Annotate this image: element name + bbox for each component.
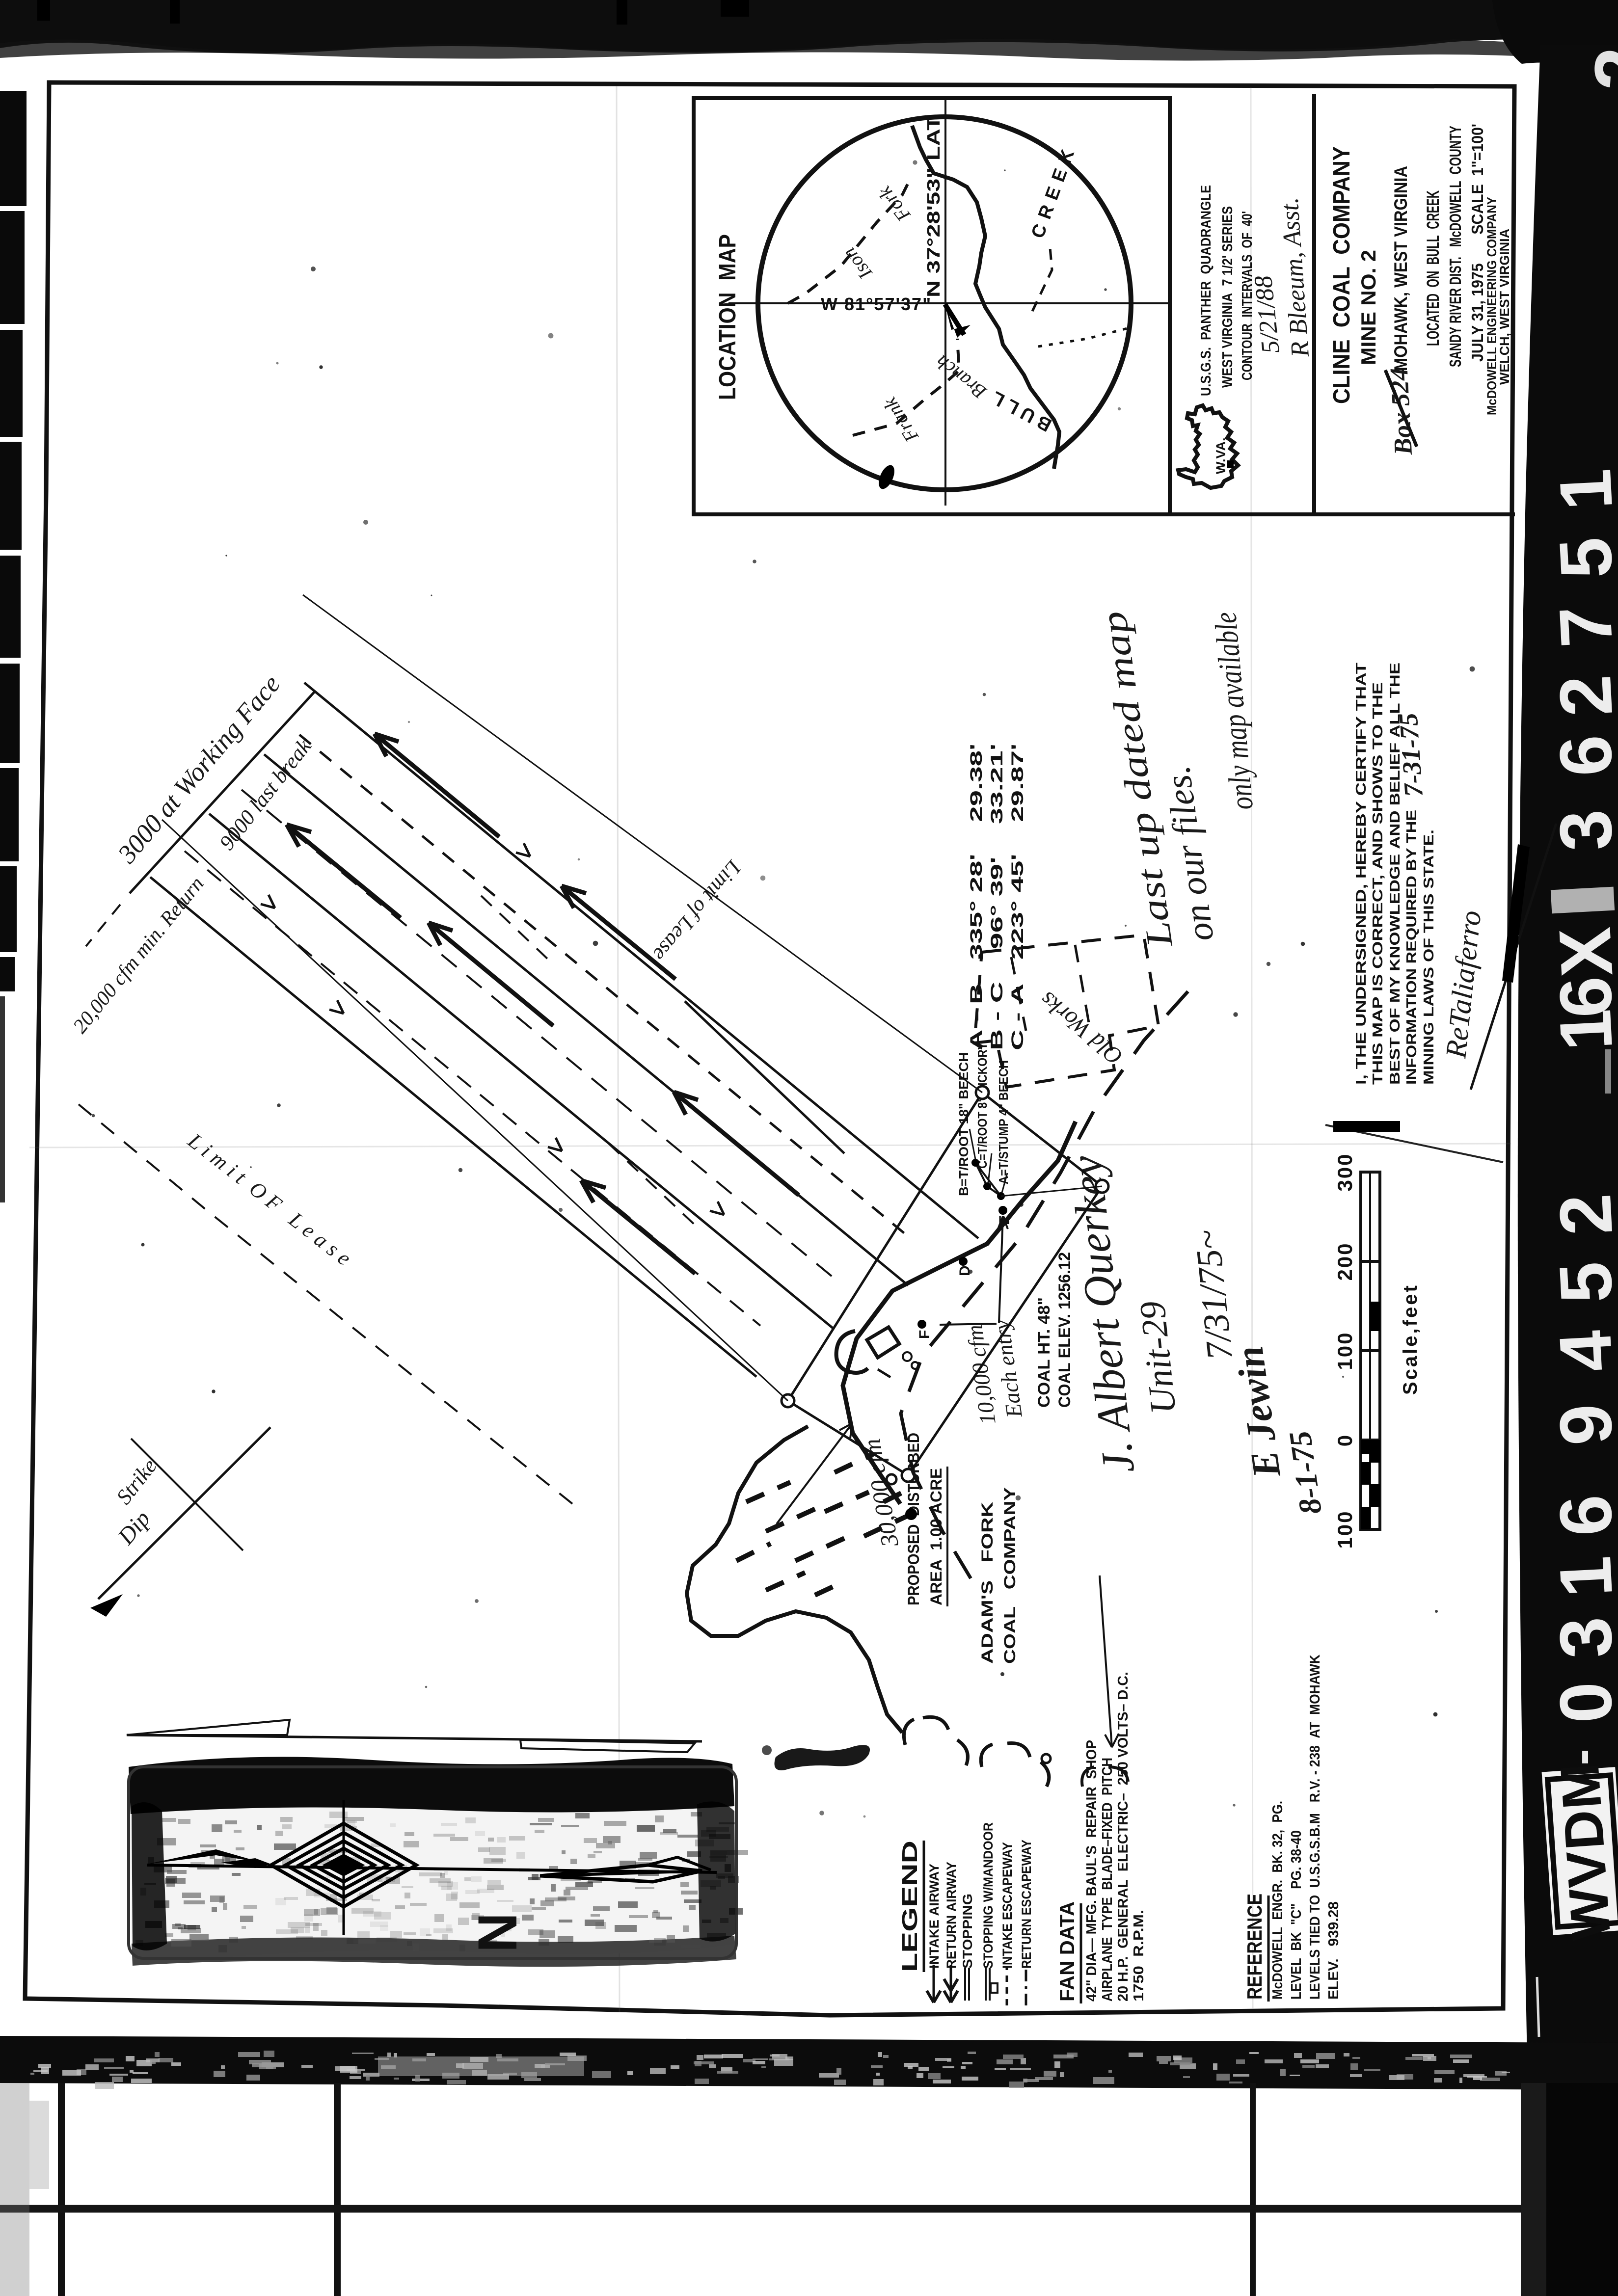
svg-text:200: 200 [1333,1242,1356,1281]
svg-text:1: 1 [1543,467,1618,512]
svg-text:A - B 335° 28' 29.38': A - B 335° 28' 29.38' [967,744,986,1050]
svg-text:INTAKE ESCAPEWAY: INTAKE ESCAPEWAY [1000,1842,1015,1969]
svg-text:CLINE COAL COMPANY: CLINE COAL COMPANY [1329,146,1355,404]
svg-text:C - A 223° 45' 29.87': C - A 223° 45' 29.87' [1008,744,1027,1050]
svg-text:RETURN ESCAPEWAY: RETURN ESCAPEWAY [1019,1840,1034,1969]
svg-text:FAN DATA: FAN DATA [1055,1901,1079,2002]
svg-text:A=T/STUMP 4" BEECH: A=T/STUMP 4" BEECH [996,1060,1011,1184]
svg-text:W 81°57'37": W 81°57'37" [821,294,932,314]
svg-text:THIS MAP IS CORRECT, AND SHOWS: THIS MAP IS CORRECT, AND SHOWS TO THE [1370,682,1386,1085]
svg-text:5: 5 [1543,1260,1618,1305]
svg-text:SANDY RIVER DIST. McDOWELL: SANDY RIVER DIST. McDOWELL COUNTY [1446,126,1464,367]
svg-text:JULY 31, 1975 SCALE 1"=: JULY 31, 1975 SCALE 1"=100' [1468,124,1486,362]
svg-text:COAL ELEV. 1256.12: COAL ELEV. 1256.12 [1055,1252,1074,1408]
svg-text:100: 100 [1333,1331,1356,1370]
svg-text:4: 4 [1543,1329,1618,1374]
svg-text:U.S.G.S. PANTHER QUADRANGLE: U.S.G.S. PANTHER QUADRANGLE [1198,185,1214,396]
svg-text:42" DIA— MFG. BAUL'S REPAIR: 42" DIA— MFG. BAUL'S REPAIR SHOP [1084,1740,1100,2002]
svg-text:2: 2 [1578,47,1618,91]
svg-text:D: D [957,1265,973,1276]
svg-text:STOPPING W/MANDOOR: STOPPING W/MANDOOR [981,1822,996,1969]
svg-text:300: 300 [1333,1152,1356,1191]
svg-text:7-31-75: 7-31-75 [1393,712,1429,798]
svg-text:F: F [917,1330,933,1339]
svg-text:REFERENCE: REFERENCE [1243,1894,1266,2000]
svg-text:6: 6 [1543,733,1618,778]
svg-text:100: 100 [1333,1510,1356,1548]
svg-text:ADAM'S FORK: ADAM'S FORK [978,1502,996,1664]
svg-text:WVDM: WVDM [1548,1761,1618,1942]
svg-text:LEVELS TIED TO U.S.G.S.B.M: LEVELS TIED TO U.S.G.S.B.M R.V. - 238 AT… [1307,1655,1323,2000]
svg-text:1: 1 [1543,1554,1618,1600]
svg-text:MINING LAWS OF THIS STATE.: MINING LAWS OF THIS STATE. [1421,829,1437,1085]
svg-text:1750 R.P.M.: 1750 R.P.M. [1131,1910,1147,2002]
svg-text:COAL HT. 48": COAL HT. 48" [1035,1297,1053,1408]
svg-text:AIRPLANE TYPE BLADE–FIXED P: AIRPLANE TYPE BLADE–FIXED PITCH [1100,1758,1115,2002]
svg-text:B - C 96° 39' 33.21': B - C 96° 39' 33.21' [988,744,1006,1050]
svg-text:COAL COMPANY: COAL COMPANY [1001,1487,1019,1664]
svg-text:X: X [1543,925,1618,979]
svg-text:LOCATED ON BULL CREEK: LOCATED ON BULL CREEK [1424,190,1443,346]
svg-text:INTAKE AIRWAY: INTAKE AIRWAY [927,1864,942,1969]
svg-text:2: 2 [1543,1192,1618,1237]
svg-text:20 H.P. GENERAL ELECTRIC– 2: 20 H.P. GENERAL ELECTRIC– 250 VOLTS– D.C… [1115,1672,1131,2002]
svg-text:3: 3 [1543,1615,1618,1660]
svg-text:MINE NO. 2: MINE NO. 2 [1357,250,1380,365]
svg-text:0: 0 [1543,1680,1618,1725]
svg-text:LOCATION MAP: LOCATION MAP [715,234,741,400]
svg-text:McDOWELL ENGR. BK. 32, PG.: McDOWELL ENGR. BK. 32, PG. [1270,1801,1286,2000]
svg-text:0: 0 [1333,1434,1356,1446]
svg-text:7: 7 [1543,604,1618,649]
svg-text:LEGEND: LEGEND [898,1841,922,1972]
svg-text:RETURN AIRWAY: RETURN AIRWAY [944,1862,959,1969]
svg-text:ELEV. 939.28: ELEV. 939.28 [1326,1901,1342,2000]
svg-text:Scale,feet: Scale,feet [1400,1283,1421,1395]
svg-text:AREA 1.00 ACRE: AREA 1.00 ACRE [927,1468,945,1605]
svg-text:STOPPING: STOPPING [960,1894,975,1969]
svg-text:WELCH, WEST VIRGINIA: WELCH, WEST VIRGINIA [1497,229,1512,385]
svg-text:W.VA.: W.VA. [1213,437,1228,474]
svg-text:6: 6 [1543,1493,1618,1538]
svg-text:C=T/ROOT 8" HICKORY: C=T/ROOT 8" HICKORY [975,1042,990,1169]
svg-text:I, THE UNDERSIGNED, HEREBY CER: I, THE UNDERSIGNED, HEREBY CERTIFY THAT [1353,663,1369,1085]
svg-text:INFORMATION REQUIRED BY THE: INFORMATION REQUIRED BY THE [1404,810,1420,1085]
svg-text:N: N [467,1913,528,1952]
svg-text:LEVEL BK "C" PG. 38-40: LEVEL BK "C" PG. 38-40 [1289,1830,1304,2000]
svg-text:5: 5 [1543,535,1618,581]
svg-text:9: 9 [1543,1402,1618,1447]
svg-text:N 37°28'53" LAT: N 37°28'53" LAT [923,116,944,297]
svg-text:MOHAWK, WEST VIRGINIA: MOHAWK, WEST VIRGINIA [1391,166,1411,371]
svg-text:2: 2 [1543,673,1618,719]
svg-text:6: 6 [1543,975,1618,1020]
svg-text:WEST VIRGINIA 7 1/2' SERIES: WEST VIRGINIA 7 1/2' SERIES [1220,206,1236,388]
